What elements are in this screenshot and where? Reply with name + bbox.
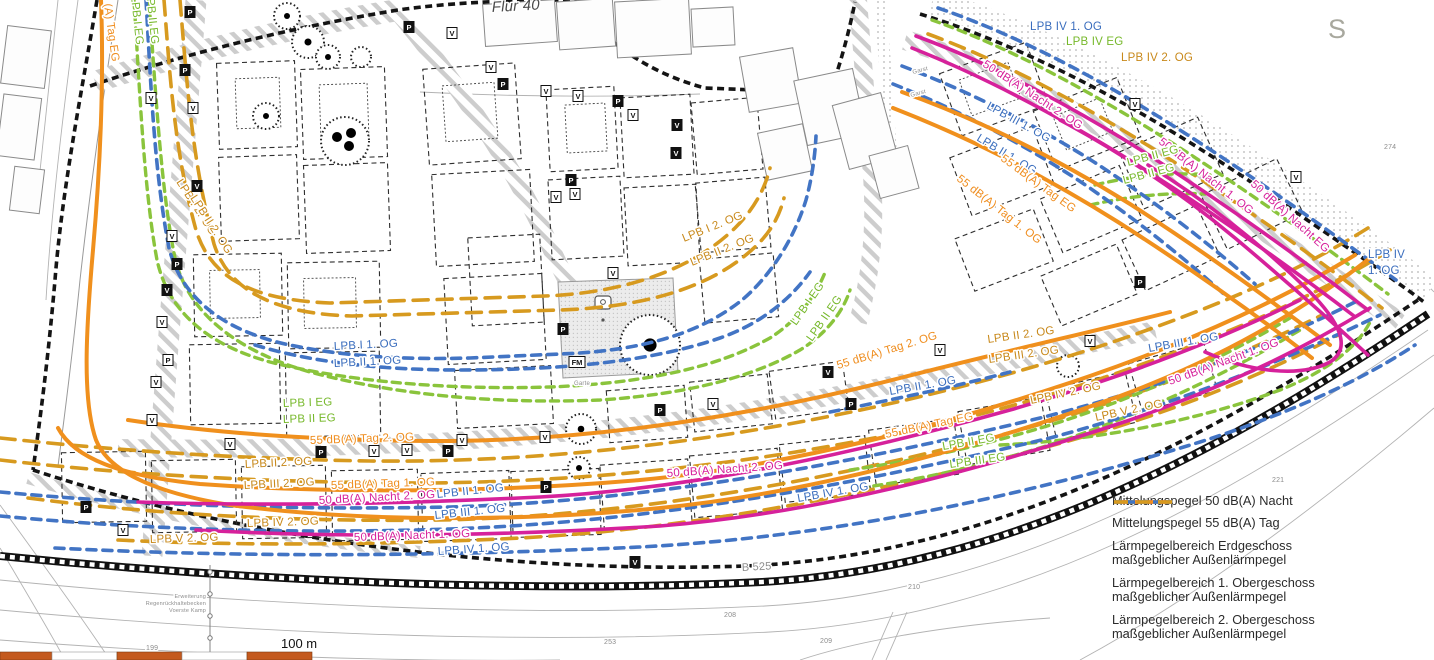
svg-text:V: V xyxy=(371,447,376,456)
road-marker-p: P xyxy=(172,259,182,270)
road-marker-v: V xyxy=(823,367,833,378)
svg-text:V: V xyxy=(1293,173,1298,182)
svg-text:P: P xyxy=(187,8,192,17)
road-marker-v: V xyxy=(188,103,198,114)
parcel-number: 274 xyxy=(1384,144,1396,151)
svg-text:P: P xyxy=(500,80,505,89)
road-marker-p: P xyxy=(404,22,414,33)
svg-text:P: P xyxy=(165,356,170,365)
contour-label: 55 dB(A) Tag 2. OG xyxy=(835,330,938,372)
road-marker-p: P xyxy=(558,324,568,335)
parcel-number: 199 xyxy=(146,645,158,652)
road-marker-v: V xyxy=(118,525,128,536)
road-marker-v: V xyxy=(1085,336,1095,347)
road-marker-p: P xyxy=(316,447,326,458)
tree-icon xyxy=(566,414,596,444)
existing-building xyxy=(758,124,813,181)
road-marker-v: V xyxy=(402,445,412,456)
svg-text:V: V xyxy=(674,121,679,130)
svg-text:P: P xyxy=(543,483,548,492)
svg-text:V: V xyxy=(190,104,195,113)
svg-text:V: V xyxy=(937,346,942,355)
svg-text:V: V xyxy=(120,526,125,535)
svg-text:V: V xyxy=(632,558,637,567)
tree-icon xyxy=(321,117,369,165)
scale-bar: 100 m xyxy=(0,636,317,660)
road-marker-v: V xyxy=(146,93,156,104)
svg-text:V: V xyxy=(825,368,830,377)
svg-text:P: P xyxy=(445,447,450,456)
svg-text:P: P xyxy=(615,97,620,106)
road-marker-p: P xyxy=(566,175,576,186)
svg-text:P: P xyxy=(406,23,411,32)
existing-building xyxy=(615,0,692,58)
svg-text:V: V xyxy=(553,193,558,202)
road-marker-v: V xyxy=(1291,172,1301,183)
road-marker-v: V xyxy=(608,268,618,279)
contour-label: LPB II 2. OG xyxy=(245,455,313,471)
existing-building xyxy=(691,7,735,47)
road-marker-v: V xyxy=(540,432,550,443)
contour-label: 55 dB(A) Tag EG xyxy=(998,153,1078,215)
road-marker-p: P xyxy=(185,7,195,18)
parcel xyxy=(624,184,700,266)
tree-icon xyxy=(351,47,371,67)
parcel-number: 221 xyxy=(1272,477,1284,484)
svg-text:P: P xyxy=(83,503,88,512)
annotation-line: Erweiterung xyxy=(174,594,206,600)
road-marker-v: V xyxy=(192,181,202,192)
svg-text:V: V xyxy=(148,94,153,103)
road-marker-v: V xyxy=(570,189,580,200)
svg-text:V: V xyxy=(572,190,577,199)
road-marker-v: V xyxy=(167,231,177,242)
road-marker-v: V xyxy=(573,91,583,102)
svg-text:V: V xyxy=(542,433,547,442)
tree-icon xyxy=(316,45,340,69)
svg-text:V: V xyxy=(575,92,580,101)
contour-label: LPB IV 1. OG xyxy=(437,541,510,558)
contour-label: LPB IV xyxy=(1368,249,1405,261)
svg-text:V: V xyxy=(227,440,232,449)
road-marker-v: V xyxy=(147,415,157,426)
parcel xyxy=(217,61,298,150)
existing-building xyxy=(740,48,803,113)
existing-building xyxy=(0,94,42,160)
road-marker-v: V xyxy=(708,399,718,410)
road-marker-p: P xyxy=(443,446,453,457)
road-marker-p: P xyxy=(81,502,91,513)
parcel-number: 253 xyxy=(604,639,616,646)
road-marker-p: P xyxy=(655,405,665,416)
legend-label: Lärmpegelbereich 2. Obergeschossmaßgebli… xyxy=(1112,613,1315,642)
contour-label: LPB IV EG xyxy=(1066,36,1123,48)
svg-text:V: V xyxy=(404,446,409,455)
existing-building xyxy=(1,26,52,89)
noise-contour-map: (A) Tag EGLPB I EGLPB II EGLPB I 2. OGLP… xyxy=(0,0,1434,660)
parcel-number: 209 xyxy=(820,638,832,645)
road-marker-v: V xyxy=(369,446,379,457)
legend-item-lpb-2og: Lärmpegelbereich 2. Obergeschossmaßgebli… xyxy=(1112,613,1434,642)
contour-label: 1. OG xyxy=(1368,265,1400,277)
contour-label: LPB IV 1. OG xyxy=(1030,21,1102,33)
contour-label: LPB V 2. OG xyxy=(150,532,219,546)
svg-text:V: V xyxy=(673,149,678,158)
legend-item-lpb-eg: Lärmpegelbereich Erdgeschossmaßgeblicher… xyxy=(1112,539,1434,568)
street-letter: S xyxy=(1328,14,1346,44)
svg-text:V: V xyxy=(194,182,199,191)
garden-label: Garte xyxy=(574,381,590,387)
parcel xyxy=(303,163,390,254)
contour-label: LPB I EG xyxy=(283,396,333,410)
road-marker-v: V xyxy=(486,62,496,73)
contour-label: LPB IV 2. OG xyxy=(1121,52,1193,64)
svg-text:V: V xyxy=(630,111,635,120)
parcel xyxy=(1041,244,1138,326)
svg-text:P: P xyxy=(568,176,573,185)
contour-label: LPB II EG xyxy=(283,412,336,426)
annotation-leader xyxy=(208,565,212,660)
road-marker-v: V xyxy=(225,439,235,450)
legend-swatch-lpb-2og xyxy=(1112,496,1174,508)
road-marker-v: V xyxy=(157,317,167,328)
road-marker-p: P xyxy=(613,96,623,107)
svg-text:P: P xyxy=(182,66,187,75)
road-marker-v: V xyxy=(628,110,638,121)
road-marker-v: V xyxy=(457,435,467,446)
svg-text:V: V xyxy=(169,232,174,241)
road-marker-v: V xyxy=(447,28,457,39)
svg-text:P: P xyxy=(848,400,853,409)
svg-text:P: P xyxy=(560,325,565,334)
legend: Mittelungspegel 50 dB(A) NachtMittelungs… xyxy=(1112,494,1434,650)
road-marker-v: V xyxy=(151,377,161,388)
road-marker-v: V xyxy=(1130,99,1140,110)
building-envelope xyxy=(565,103,607,153)
parcel xyxy=(620,94,694,178)
road-marker-v: V xyxy=(541,86,551,97)
annotation-line: Voerste Kamp xyxy=(169,608,206,614)
svg-text:P: P xyxy=(318,448,323,457)
svg-text:V: V xyxy=(164,286,169,295)
svg-text:V: V xyxy=(488,63,493,72)
tree-icon xyxy=(620,315,680,375)
legend-item-tag55: Mittelungspegel 55 dB(A) Tag xyxy=(1112,516,1434,530)
road-marker-v: V xyxy=(551,192,561,203)
parcel-number: 208 xyxy=(724,612,736,619)
contour-lpb1-1og xyxy=(146,0,816,358)
parcel xyxy=(287,261,380,349)
road-marker-v: V xyxy=(630,557,640,568)
road-marker-v: V xyxy=(935,345,945,356)
district-label: Flur 40 xyxy=(491,0,540,16)
svg-text:FM: FM xyxy=(572,358,583,367)
legend-label: Lärmpegelbereich 1. Obergeschossmaßgebli… xyxy=(1112,576,1315,605)
road-marker-v: V xyxy=(162,285,172,296)
contour-label: LPB I 1. OG xyxy=(334,338,399,353)
parcel xyxy=(699,253,778,323)
road-marker-p: P xyxy=(163,355,173,366)
svg-text:V: V xyxy=(610,269,615,278)
legend-label: Mittelungspegel 55 dB(A) Tag xyxy=(1112,516,1280,530)
road-marker-p: P xyxy=(846,399,856,410)
svg-text:V: V xyxy=(543,87,548,96)
tree-icon xyxy=(253,103,279,129)
svg-text:P: P xyxy=(657,406,662,415)
road-marker-v: V xyxy=(671,148,681,159)
svg-text:V: V xyxy=(1087,337,1092,346)
road-marker-p: P xyxy=(541,482,551,493)
tree-icon xyxy=(274,3,300,29)
svg-text:V: V xyxy=(459,436,464,445)
scale-label: 100 m xyxy=(281,636,317,651)
svg-text:V: V xyxy=(1132,100,1137,109)
svg-text:V: V xyxy=(153,378,158,387)
parcel xyxy=(444,273,546,364)
parcel xyxy=(219,155,300,242)
road-marker-v: V xyxy=(672,120,682,131)
parcel-number: 210 xyxy=(908,584,920,591)
svg-text:V: V xyxy=(149,416,154,425)
svg-text:P: P xyxy=(174,260,179,269)
contour-label: LPB IV 2. OG xyxy=(247,515,319,530)
annotation-line: Regenrückhaltebecken xyxy=(146,601,206,607)
road-marker-p: P xyxy=(498,79,508,90)
svg-text:V: V xyxy=(449,29,454,38)
legend-label: Lärmpegelbereich Erdgeschossmaßgeblicher… xyxy=(1112,539,1292,568)
existing-building xyxy=(9,166,44,213)
svg-text:P: P xyxy=(1137,278,1142,287)
road-marker-p: P xyxy=(180,65,190,76)
legend-item-lpb-1og: Lärmpegelbereich 1. Obergeschossmaßgebli… xyxy=(1112,576,1434,605)
road-marker-p: P xyxy=(1135,277,1145,288)
svg-text:V: V xyxy=(159,318,164,327)
existing-building xyxy=(556,0,615,50)
contour-label: LPB I EG xyxy=(128,0,145,46)
road-marker-fm: FM xyxy=(569,357,585,368)
svg-text:V: V xyxy=(710,400,715,409)
road-label: B 525 xyxy=(742,560,772,574)
